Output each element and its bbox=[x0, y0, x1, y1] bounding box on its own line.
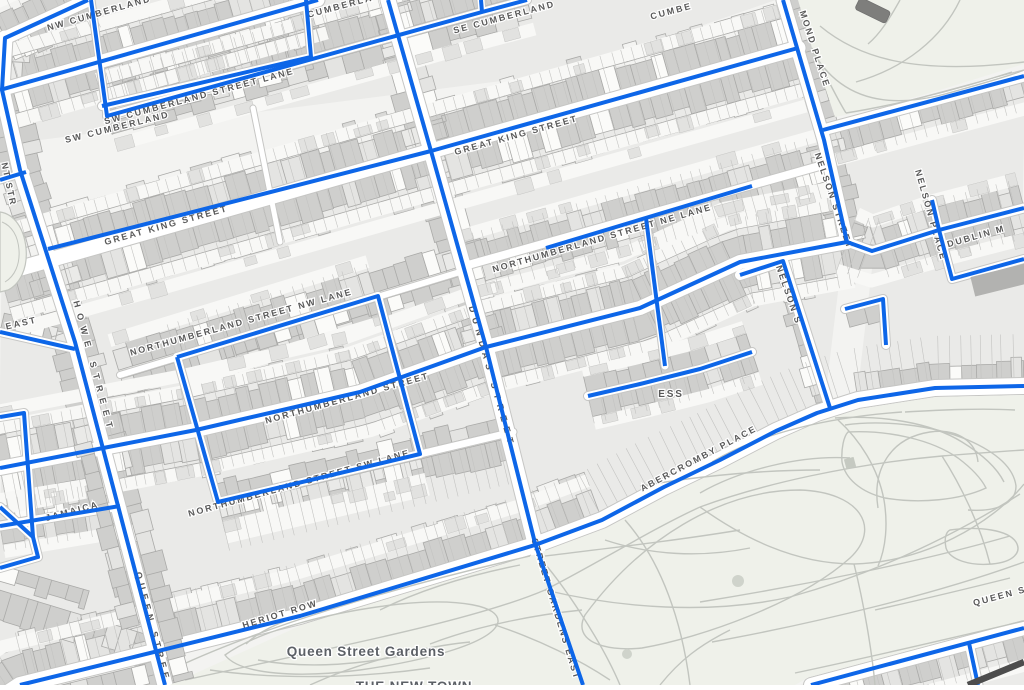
svg-text:Queen Street Gardens: Queen Street Gardens bbox=[287, 644, 446, 659]
svg-text:ESS: ESS bbox=[658, 389, 683, 400]
svg-text:THE NEW TOWN: THE NEW TOWN bbox=[356, 679, 473, 685]
